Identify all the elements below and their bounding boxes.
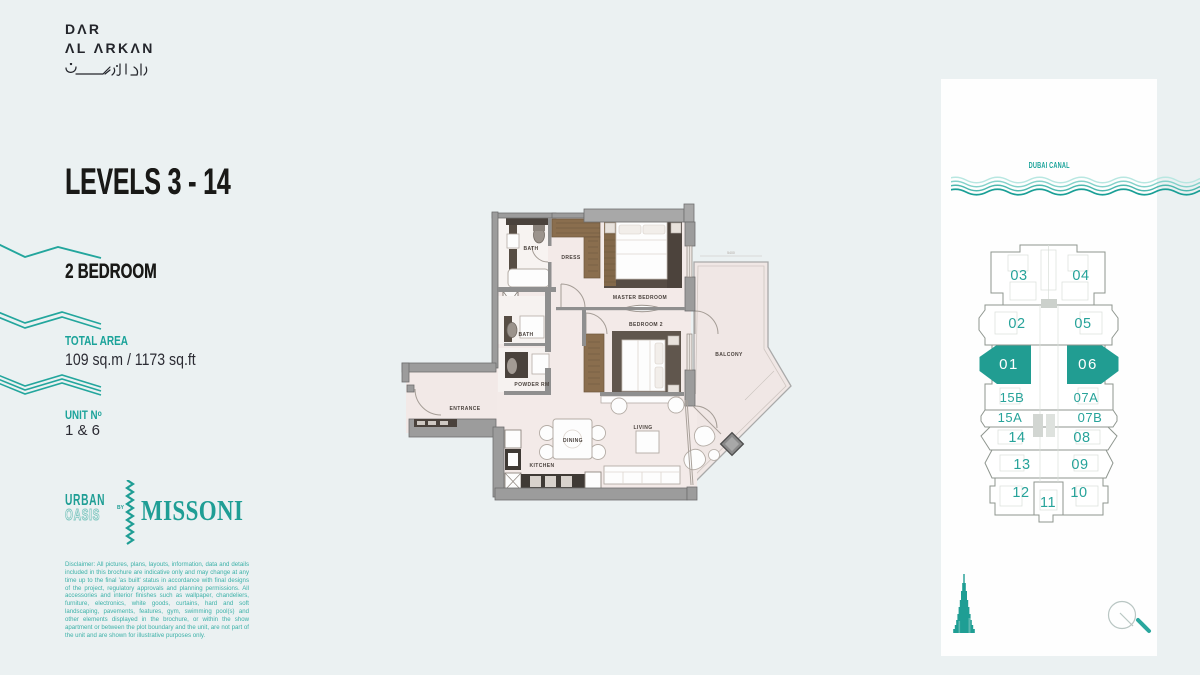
svg-text:BATH: BATH — [523, 246, 538, 252]
svg-text:12: 12 — [1012, 485, 1029, 501]
svg-text:07A: 07A — [1074, 390, 1099, 405]
svg-text:15B: 15B — [1000, 390, 1025, 405]
svg-text:06: 06 — [1078, 356, 1098, 373]
svg-text:03: 03 — [1010, 268, 1027, 284]
svg-text:LIVING: LIVING — [633, 425, 652, 431]
svg-text:MASTER BEDROOM: MASTER BEDROOM — [613, 295, 667, 301]
svg-text:ENTRANCE: ENTRANCE — [450, 406, 481, 412]
svg-text:01: 01 — [999, 356, 1019, 373]
svg-text:5400: 5400 — [727, 251, 735, 255]
svg-text:KITCHEN: KITCHEN — [529, 463, 554, 469]
svg-text:POWDER RM: POWDER RM — [514, 382, 549, 388]
svg-text:14: 14 — [1008, 430, 1025, 446]
svg-text:02: 02 — [1008, 316, 1025, 332]
svg-text:08: 08 — [1073, 430, 1090, 446]
svg-text:15A: 15A — [998, 410, 1023, 425]
svg-text:BEDROOM 2: BEDROOM 2 — [629, 322, 663, 328]
svg-text:DINING: DINING — [563, 438, 583, 444]
svg-text:10: 10 — [1070, 485, 1087, 501]
svg-text:BALCONY: BALCONY — [715, 352, 743, 358]
svg-text:09: 09 — [1071, 457, 1088, 473]
svg-text:07B: 07B — [1078, 410, 1103, 425]
svg-text:BATH: BATH — [518, 332, 533, 338]
svg-text:13: 13 — [1013, 457, 1030, 473]
svg-text:11: 11 — [1040, 495, 1056, 511]
svg-text:DRESS: DRESS — [561, 255, 580, 261]
svg-text:04: 04 — [1072, 268, 1089, 284]
svg-text:05: 05 — [1074, 316, 1091, 332]
